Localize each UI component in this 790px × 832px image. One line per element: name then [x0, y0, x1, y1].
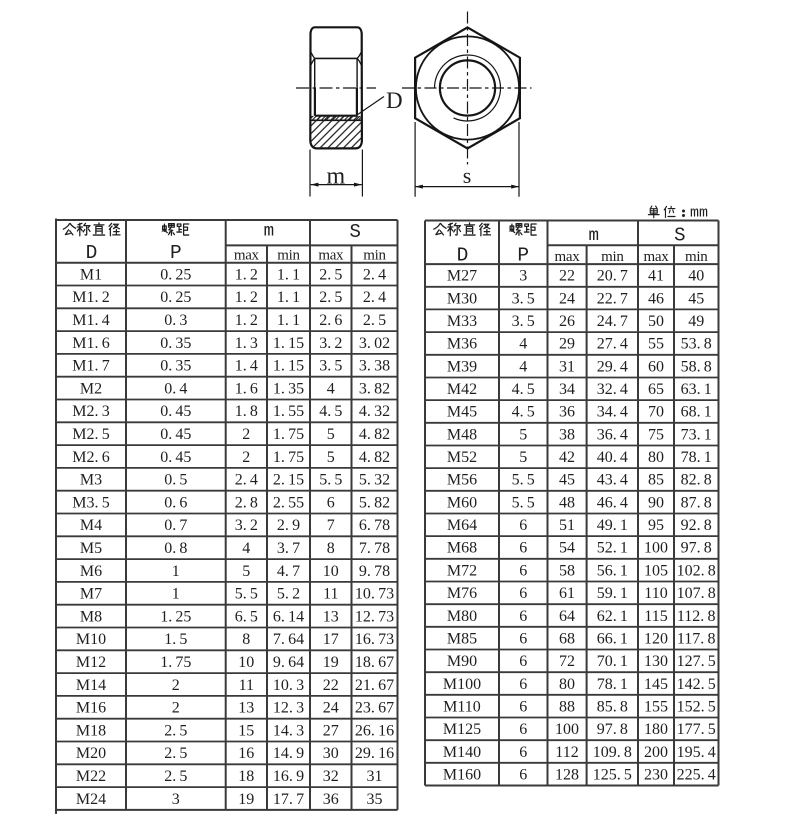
- svg-text:78. 1: 78. 1: [681, 449, 712, 466]
- svg-text:12. 3: 12. 3: [273, 700, 304, 717]
- svg-text:29. 4: 29. 4: [597, 358, 628, 375]
- svg-text:2: 2: [172, 677, 180, 694]
- svg-text:4: 4: [327, 380, 335, 397]
- svg-text:1. 15: 1. 15: [273, 358, 304, 375]
- svg-text:36. 4: 36. 4: [597, 426, 628, 443]
- svg-text:1: 1: [172, 563, 180, 580]
- svg-text:36: 36: [559, 404, 575, 421]
- svg-text:0. 6: 0. 6: [164, 494, 187, 511]
- svg-text:4: 4: [519, 358, 527, 375]
- svg-text:M14: M14: [76, 677, 106, 694]
- svg-text:34: 34: [559, 381, 575, 398]
- svg-text:max: max: [234, 248, 260, 264]
- svg-text:1. 8: 1. 8: [235, 403, 258, 420]
- svg-text:3. 02: 3. 02: [359, 335, 390, 352]
- svg-text:56. 1: 56. 1: [597, 562, 628, 579]
- svg-text:M1. 4: M1. 4: [72, 312, 109, 329]
- svg-text:5. 32: 5. 32: [359, 472, 390, 489]
- svg-text:M52: M52: [447, 449, 477, 466]
- svg-text:M3: M3: [80, 472, 102, 489]
- svg-text:10. 73: 10. 73: [355, 586, 394, 603]
- svg-text:152. 5: 152. 5: [677, 698, 716, 715]
- svg-text:59. 1: 59. 1: [597, 585, 628, 602]
- svg-text:M48: M48: [447, 426, 477, 443]
- svg-text:4. 32: 4. 32: [359, 403, 390, 420]
- svg-text:48: 48: [559, 494, 575, 511]
- svg-text:55: 55: [648, 336, 664, 353]
- svg-text:M2. 5: M2. 5: [72, 426, 109, 443]
- svg-text:66. 1: 66. 1: [597, 630, 628, 647]
- svg-text:1. 2: 1. 2: [235, 289, 258, 306]
- svg-text:7. 78: 7. 78: [359, 540, 390, 557]
- svg-text:5. 5: 5. 5: [235, 586, 258, 603]
- svg-text:6: 6: [327, 494, 335, 511]
- svg-text:200: 200: [644, 744, 668, 761]
- svg-text:155: 155: [644, 698, 668, 715]
- svg-text:4: 4: [519, 336, 527, 353]
- svg-text:6: 6: [519, 744, 527, 761]
- svg-text:2. 55: 2. 55: [273, 494, 304, 511]
- svg-text:1. 5: 1. 5: [164, 631, 187, 648]
- svg-text:6. 5: 6. 5: [235, 608, 258, 625]
- svg-text:2. 9: 2. 9: [277, 517, 300, 534]
- svg-text:min: min: [277, 248, 300, 264]
- svg-text:45: 45: [559, 472, 575, 489]
- svg-text:M20: M20: [76, 745, 106, 762]
- svg-text:102. 8: 102. 8: [677, 562, 716, 579]
- svg-text:127. 5: 127. 5: [677, 653, 716, 670]
- svg-text:19: 19: [323, 654, 339, 671]
- svg-text:2. 6: 2. 6: [319, 312, 342, 329]
- svg-text:0. 35: 0. 35: [160, 335, 191, 352]
- svg-text:M56: M56: [447, 472, 477, 489]
- svg-text:0. 4: 0. 4: [164, 380, 187, 397]
- svg-text:0. 8: 0. 8: [164, 540, 187, 557]
- svg-text:8: 8: [327, 540, 335, 557]
- svg-text:M12: M12: [76, 654, 106, 671]
- svg-text:6. 14: 6. 14: [273, 608, 304, 625]
- svg-text:4. 82: 4. 82: [359, 449, 390, 466]
- svg-text:mm: mm: [690, 205, 708, 222]
- svg-text:5. 82: 5. 82: [359, 494, 390, 511]
- svg-text:2. 4: 2. 4: [235, 472, 258, 489]
- svg-text:7. 64: 7. 64: [273, 631, 304, 648]
- svg-text:M7: M7: [80, 586, 102, 603]
- svg-text:64: 64: [559, 608, 575, 625]
- svg-text:5: 5: [519, 426, 527, 443]
- svg-text:10: 10: [238, 654, 254, 671]
- svg-text:5. 2: 5. 2: [277, 586, 300, 603]
- svg-text:49: 49: [688, 313, 704, 330]
- svg-text:M18: M18: [76, 722, 106, 739]
- svg-text:m: m: [589, 226, 600, 246]
- svg-text:M16: M16: [76, 700, 106, 717]
- svg-text:2. 8: 2. 8: [235, 494, 258, 511]
- svg-text:90: 90: [648, 494, 664, 511]
- svg-text:117. 8: 117. 8: [677, 630, 716, 647]
- svg-text:52. 1: 52. 1: [597, 540, 628, 557]
- svg-text:58. 8: 58. 8: [681, 358, 712, 375]
- svg-text:65: 65: [648, 381, 664, 398]
- svg-text:M2: M2: [80, 380, 102, 397]
- svg-text:46: 46: [648, 290, 664, 307]
- svg-text:1: 1: [172, 586, 180, 603]
- svg-text:min: min: [685, 249, 708, 265]
- svg-text:24: 24: [323, 700, 339, 717]
- svg-text:26: 26: [559, 313, 575, 330]
- svg-text:95: 95: [648, 517, 664, 534]
- svg-text:4. 82: 4. 82: [359, 426, 390, 443]
- svg-text:M68: M68: [447, 540, 477, 557]
- svg-text:1. 4: 1. 4: [235, 358, 258, 375]
- svg-text:60: 60: [648, 358, 664, 375]
- svg-text:92. 8: 92. 8: [681, 517, 712, 534]
- svg-text:100: 100: [555, 721, 579, 738]
- svg-text:29. 16: 29. 16: [355, 745, 394, 762]
- svg-text:0. 45: 0. 45: [160, 426, 191, 443]
- svg-text:M85: M85: [447, 630, 477, 647]
- svg-text:6: 6: [519, 630, 527, 647]
- svg-text:2. 4: 2. 4: [363, 289, 386, 306]
- svg-text:17. 7: 17. 7: [273, 791, 304, 808]
- svg-text:27. 4: 27. 4: [597, 336, 628, 353]
- svg-text:3. 5: 3. 5: [512, 313, 535, 330]
- svg-text:15: 15: [238, 722, 254, 739]
- svg-text:16. 73: 16. 73: [355, 631, 394, 648]
- svg-text:22: 22: [559, 268, 575, 285]
- svg-text:6: 6: [519, 721, 527, 738]
- svg-text:24: 24: [559, 290, 575, 307]
- svg-text:7: 7: [327, 517, 335, 534]
- svg-text:0. 7: 0. 7: [164, 517, 187, 534]
- svg-text:4. 5: 4. 5: [512, 381, 535, 398]
- svg-text:4. 7: 4. 7: [277, 563, 300, 580]
- svg-text:73. 1: 73. 1: [681, 426, 712, 443]
- svg-text:min: min: [363, 248, 386, 264]
- svg-text:45: 45: [688, 290, 704, 307]
- svg-text:1. 75: 1. 75: [273, 449, 304, 466]
- svg-text:22. 7: 22. 7: [597, 290, 628, 307]
- svg-text:5: 5: [519, 449, 527, 466]
- svg-text:85: 85: [648, 472, 664, 489]
- svg-text:32: 32: [323, 768, 339, 785]
- svg-text:1. 35: 1. 35: [273, 380, 304, 397]
- svg-text:29: 29: [559, 336, 575, 353]
- svg-text:M72: M72: [447, 562, 477, 579]
- svg-text:P: P: [170, 242, 182, 264]
- svg-text:M27: M27: [447, 268, 477, 285]
- svg-text:M76: M76: [447, 585, 477, 602]
- svg-text:2. 5: 2. 5: [164, 745, 187, 762]
- svg-text:0. 25: 0. 25: [160, 266, 191, 283]
- svg-text:S: S: [674, 225, 685, 247]
- svg-text:18: 18: [238, 768, 254, 785]
- svg-text:4. 5: 4. 5: [319, 403, 342, 420]
- svg-text:120: 120: [644, 630, 668, 647]
- svg-text:70: 70: [648, 404, 664, 421]
- svg-text:107. 8: 107. 8: [677, 585, 716, 602]
- svg-text:1. 75: 1. 75: [273, 426, 304, 443]
- svg-text:128: 128: [555, 766, 579, 783]
- svg-text:16: 16: [238, 745, 254, 762]
- svg-text:11: 11: [239, 677, 254, 694]
- svg-text:72: 72: [559, 653, 575, 670]
- svg-text:1. 15: 1. 15: [273, 335, 304, 352]
- svg-text:34. 4: 34. 4: [597, 404, 628, 421]
- svg-text:195. 4: 195. 4: [677, 744, 716, 761]
- svg-text:97. 8: 97. 8: [681, 540, 712, 557]
- svg-text:8: 8: [242, 631, 250, 648]
- svg-text:5. 5: 5. 5: [512, 494, 535, 511]
- svg-text:3. 5: 3. 5: [512, 290, 535, 307]
- svg-text:9. 78: 9. 78: [359, 563, 390, 580]
- svg-text:3. 2: 3. 2: [235, 517, 258, 534]
- svg-text:109. 8: 109. 8: [593, 744, 632, 761]
- svg-text:20. 7: 20. 7: [597, 268, 628, 285]
- svg-text:max: max: [318, 248, 344, 264]
- svg-text:14. 9: 14. 9: [273, 745, 304, 762]
- svg-text:1. 1: 1. 1: [277, 266, 300, 283]
- svg-text:12. 73: 12. 73: [355, 608, 394, 625]
- svg-text:31: 31: [367, 768, 383, 785]
- svg-text:38: 38: [559, 426, 575, 443]
- svg-text:2. 5: 2. 5: [319, 266, 342, 283]
- svg-text:40. 4: 40. 4: [597, 449, 628, 466]
- svg-text:6: 6: [519, 517, 527, 534]
- svg-text:2: 2: [172, 700, 180, 717]
- svg-text:130: 130: [644, 653, 668, 670]
- svg-text:2. 15: 2. 15: [273, 472, 304, 489]
- svg-text:13: 13: [323, 608, 339, 625]
- svg-text:2. 5: 2. 5: [363, 312, 386, 329]
- svg-text:1. 2: 1. 2: [235, 266, 258, 283]
- svg-text:5: 5: [242, 563, 250, 580]
- svg-text:6. 78: 6. 78: [359, 517, 390, 534]
- svg-text:0. 5: 0. 5: [164, 472, 187, 489]
- svg-text:3: 3: [519, 268, 527, 285]
- svg-text:M2. 3: M2. 3: [72, 403, 109, 420]
- svg-text:6: 6: [519, 676, 527, 693]
- svg-text:M1. 7: M1. 7: [72, 358, 109, 375]
- svg-text:125. 5: 125. 5: [593, 766, 632, 783]
- svg-text:49. 1: 49. 1: [597, 517, 628, 534]
- svg-text:M42: M42: [447, 381, 477, 398]
- svg-text:6: 6: [519, 698, 527, 715]
- svg-text:M64: M64: [447, 517, 477, 534]
- svg-text:P: P: [517, 245, 529, 267]
- svg-text:100: 100: [644, 540, 668, 557]
- svg-text:17: 17: [323, 631, 339, 648]
- svg-text:3: 3: [172, 791, 180, 808]
- svg-text:85. 8: 85. 8: [597, 698, 628, 715]
- svg-text:5: 5: [327, 449, 335, 466]
- svg-text:6: 6: [519, 540, 527, 557]
- svg-text:10: 10: [323, 563, 339, 580]
- svg-text:0. 35: 0. 35: [160, 358, 191, 375]
- svg-text:11: 11: [323, 586, 338, 603]
- svg-text:31: 31: [559, 358, 575, 375]
- svg-text:78. 1: 78. 1: [597, 676, 628, 693]
- svg-text:M1: M1: [80, 266, 102, 283]
- svg-text:145: 145: [644, 676, 668, 693]
- svg-text:14. 3: 14. 3: [273, 722, 304, 739]
- svg-text:6: 6: [519, 562, 527, 579]
- svg-text:112: 112: [555, 744, 578, 761]
- svg-text:80: 80: [559, 676, 575, 693]
- svg-text:M4: M4: [80, 517, 102, 534]
- svg-text:M2. 6: M2. 6: [72, 449, 109, 466]
- svg-text:6: 6: [519, 608, 527, 625]
- svg-text:105: 105: [644, 562, 668, 579]
- svg-text:1. 25: 1. 25: [160, 608, 191, 625]
- svg-text:m: m: [264, 222, 275, 242]
- svg-text:2: 2: [242, 426, 250, 443]
- svg-text:D: D: [386, 88, 403, 113]
- svg-text:6: 6: [519, 766, 527, 783]
- svg-text:5: 5: [327, 426, 335, 443]
- svg-text:M33: M33: [447, 313, 477, 330]
- svg-text:75: 75: [648, 426, 664, 443]
- svg-text:177. 5: 177. 5: [677, 721, 716, 738]
- svg-text:2. 5: 2. 5: [164, 768, 187, 785]
- svg-text:1. 2: 1. 2: [235, 312, 258, 329]
- svg-text:6: 6: [519, 585, 527, 602]
- svg-text:58: 58: [559, 562, 575, 579]
- svg-text:2: 2: [242, 449, 250, 466]
- svg-text:1. 1: 1. 1: [277, 289, 300, 306]
- svg-text:21. 67: 21. 67: [355, 677, 394, 694]
- svg-text:80: 80: [648, 449, 664, 466]
- svg-text:110: 110: [644, 585, 667, 602]
- svg-text:min: min: [601, 249, 624, 265]
- svg-text:M6: M6: [80, 563, 102, 580]
- svg-text:2. 4: 2. 4: [363, 266, 386, 283]
- svg-text:87. 8: 87. 8: [681, 494, 712, 511]
- svg-text:M110: M110: [443, 698, 481, 715]
- svg-text:46. 4: 46. 4: [597, 494, 628, 511]
- svg-text:M160: M160: [443, 766, 481, 783]
- svg-text:32. 4: 32. 4: [597, 381, 628, 398]
- svg-text:35: 35: [367, 791, 383, 808]
- svg-text:51: 51: [559, 517, 575, 534]
- svg-text:M8: M8: [80, 608, 102, 625]
- svg-text:13: 13: [238, 700, 254, 717]
- svg-text:6: 6: [519, 653, 527, 670]
- svg-text:22: 22: [323, 677, 339, 694]
- svg-text:0. 25: 0. 25: [160, 289, 191, 306]
- svg-text:M5: M5: [80, 540, 102, 557]
- svg-text:63. 1: 63. 1: [681, 381, 712, 398]
- svg-text:61: 61: [559, 585, 575, 602]
- svg-text:M100: M100: [443, 676, 481, 693]
- svg-text:23. 67: 23. 67: [355, 700, 394, 717]
- svg-text:68. 1: 68. 1: [681, 404, 712, 421]
- svg-text:3. 38: 3. 38: [359, 358, 390, 375]
- svg-text:53. 8: 53. 8: [681, 336, 712, 353]
- svg-text:16. 9: 16. 9: [273, 768, 304, 785]
- svg-text:97. 8: 97. 8: [597, 721, 628, 738]
- svg-text:2. 5: 2. 5: [319, 289, 342, 306]
- svg-text:M125: M125: [443, 721, 481, 738]
- svg-text:40: 40: [688, 268, 704, 285]
- svg-text:18. 67: 18. 67: [355, 654, 394, 671]
- svg-text:225. 4: 225. 4: [677, 766, 716, 783]
- svg-text:0. 3: 0. 3: [164, 312, 187, 329]
- svg-text:3. 5: 3. 5: [319, 358, 342, 375]
- svg-text:M10: M10: [76, 631, 106, 648]
- svg-text:s: s: [463, 163, 472, 188]
- svg-text:43. 4: 43. 4: [597, 472, 628, 489]
- svg-text:62. 1: 62. 1: [597, 608, 628, 625]
- svg-text:1. 3: 1. 3: [235, 335, 258, 352]
- svg-text:180: 180: [644, 721, 668, 738]
- svg-text:230: 230: [644, 766, 668, 783]
- svg-text:M45: M45: [447, 404, 477, 421]
- svg-text:88: 88: [559, 698, 575, 715]
- svg-text:3. 7: 3. 7: [277, 540, 300, 557]
- svg-text:70. 1: 70. 1: [597, 653, 628, 670]
- svg-text:30: 30: [323, 745, 339, 762]
- svg-text:2. 5: 2. 5: [164, 722, 187, 739]
- svg-text:D: D: [86, 242, 98, 264]
- svg-text:24. 7: 24. 7: [597, 313, 628, 330]
- svg-text:M24: M24: [76, 791, 106, 808]
- svg-text:26. 16: 26. 16: [355, 722, 394, 739]
- svg-text:5. 5: 5. 5: [512, 472, 535, 489]
- svg-text:82. 8: 82. 8: [681, 472, 712, 489]
- svg-text:max: max: [555, 249, 581, 265]
- svg-text:3. 82: 3. 82: [359, 380, 390, 397]
- svg-text:M1. 2: M1. 2: [72, 289, 109, 306]
- svg-text:142. 5: 142. 5: [677, 676, 716, 693]
- svg-text:max: max: [644, 249, 670, 265]
- svg-text:M3. 5: M3. 5: [72, 494, 109, 511]
- svg-text:4: 4: [242, 540, 250, 557]
- svg-text:D: D: [457, 245, 469, 267]
- svg-text:M1. 6: M1. 6: [72, 335, 109, 352]
- svg-text:1. 55: 1. 55: [273, 403, 304, 420]
- svg-text:54: 54: [559, 540, 575, 557]
- svg-text:9. 64: 9. 64: [273, 654, 304, 671]
- svg-text:115: 115: [644, 608, 667, 625]
- svg-text:M140: M140: [443, 744, 481, 761]
- svg-text:1. 6: 1. 6: [235, 380, 258, 397]
- svg-text:1. 75: 1. 75: [160, 654, 191, 671]
- svg-text:M90: M90: [447, 653, 477, 670]
- svg-text:50: 50: [648, 313, 664, 330]
- svg-text:4. 5: 4. 5: [512, 404, 535, 421]
- svg-text:3. 2: 3. 2: [319, 335, 342, 352]
- svg-text:M60: M60: [447, 494, 477, 511]
- svg-text:m: m: [326, 164, 345, 190]
- svg-text:41: 41: [648, 268, 664, 285]
- svg-text:5. 5: 5. 5: [319, 472, 342, 489]
- svg-text:M30: M30: [447, 290, 477, 307]
- svg-text:M39: M39: [447, 358, 477, 375]
- svg-text:0. 45: 0. 45: [160, 449, 191, 466]
- svg-text:M36: M36: [447, 336, 477, 353]
- svg-text:M80: M80: [447, 608, 477, 625]
- svg-text:68: 68: [559, 630, 575, 647]
- svg-text:19: 19: [238, 791, 254, 808]
- svg-text:M22: M22: [76, 768, 106, 785]
- svg-text:1. 1: 1. 1: [277, 312, 300, 329]
- svg-text:27: 27: [323, 722, 339, 739]
- svg-text:112. 8: 112. 8: [677, 608, 716, 625]
- svg-text:42: 42: [559, 449, 575, 466]
- svg-text:S: S: [349, 221, 360, 243]
- svg-text:36: 36: [323, 791, 339, 808]
